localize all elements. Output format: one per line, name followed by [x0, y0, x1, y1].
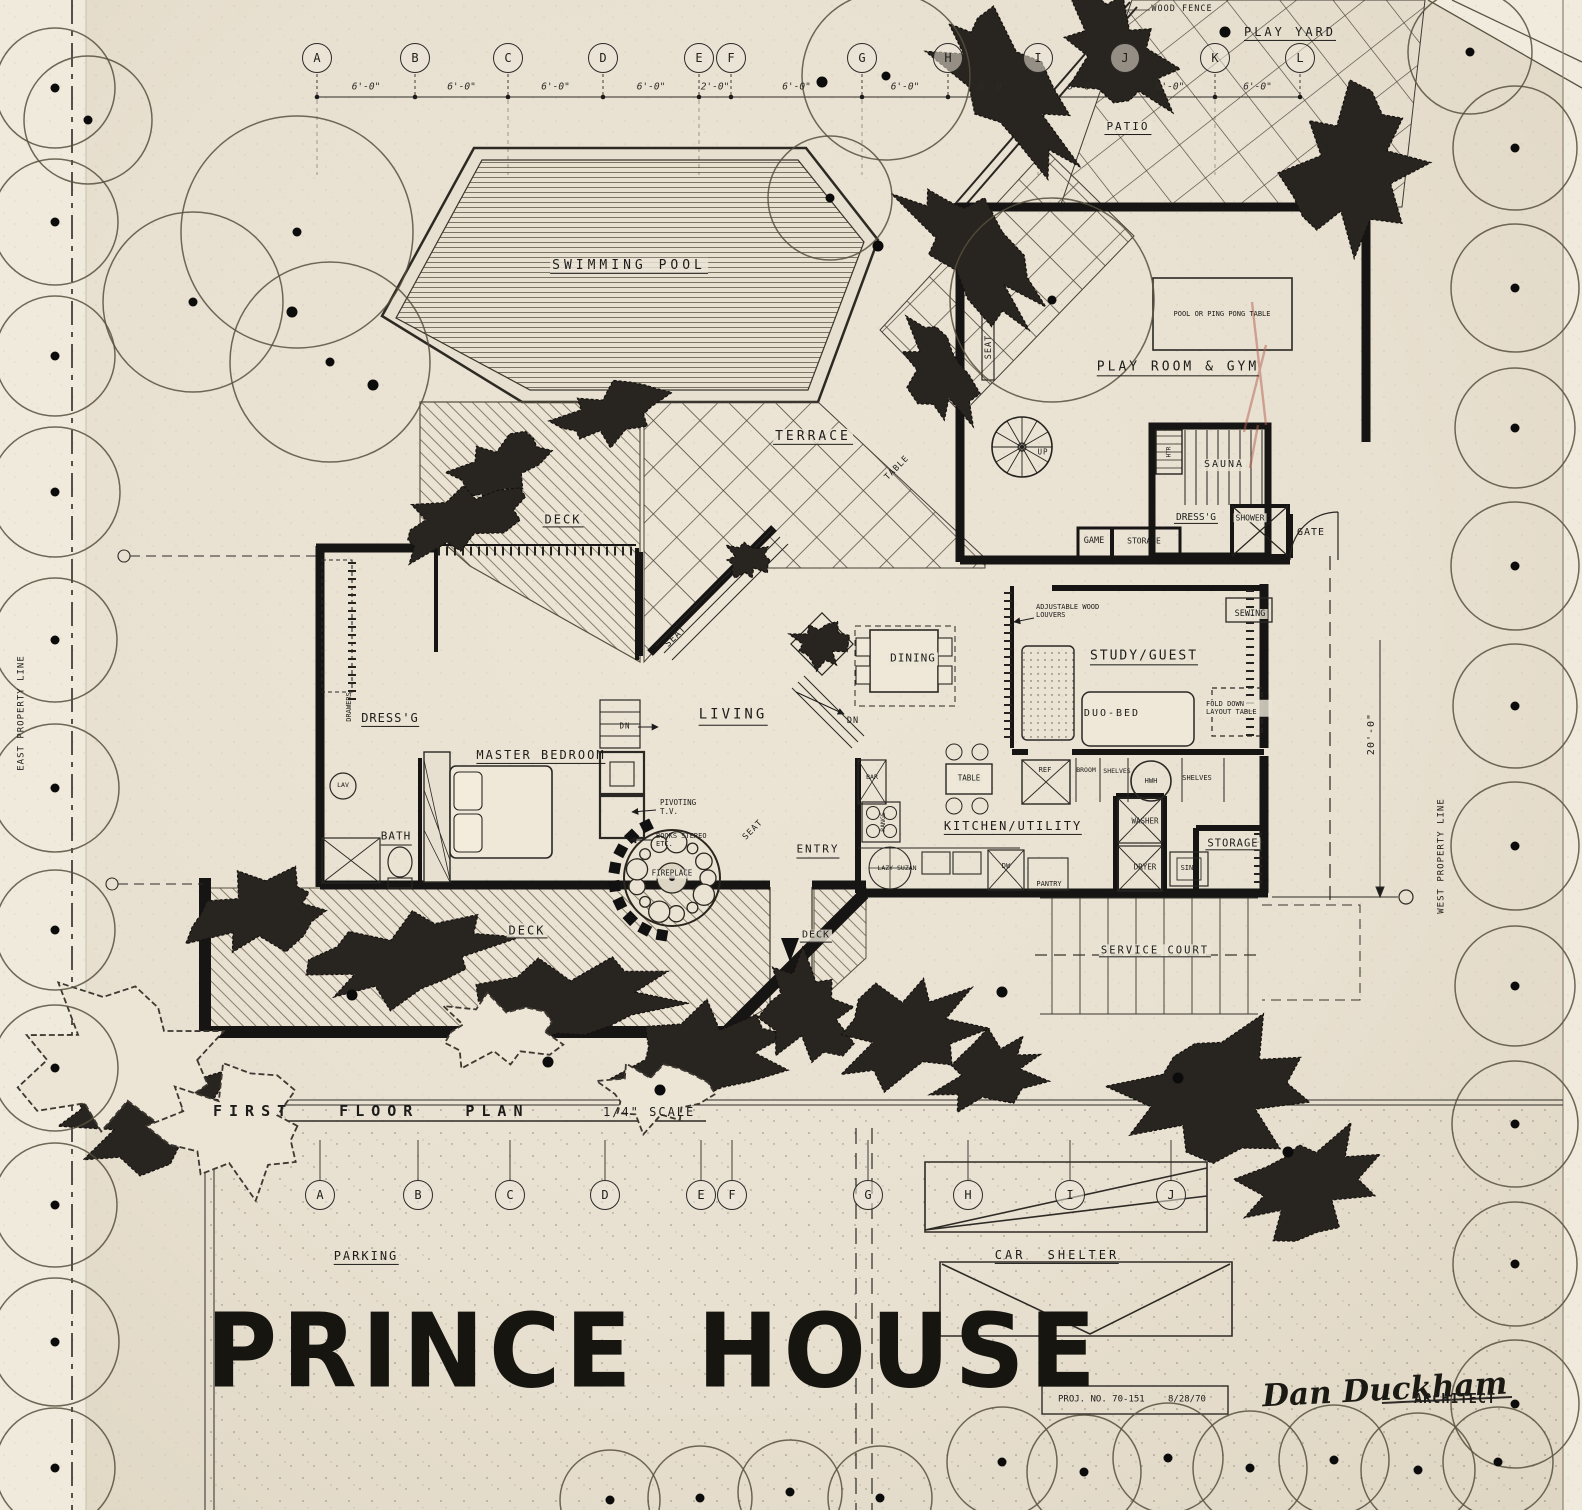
- range-label: RANGE: [880, 812, 888, 832]
- deck-upper-label: DECK: [543, 512, 584, 527]
- grid-dim-0: 6'-0": [352, 82, 381, 93]
- htr-label: HTR: [1165, 447, 1172, 458]
- seat-terrace-label: SEAT: [984, 335, 994, 359]
- service-court-label: SERVICE COURT: [1099, 944, 1211, 957]
- sheet-title: PRINCE HOUSE: [206, 1291, 1101, 1411]
- grid-dim-5: 6'-0": [782, 82, 811, 93]
- lazy-suzan-label: LAZY SUZAN: [877, 865, 917, 873]
- grid-bubble-top-I: I: [1023, 43, 1053, 73]
- books-stereo-label: BOOKS STEREO ETC.: [656, 832, 710, 849]
- hwh-label: HWH: [1145, 777, 1158, 785]
- grid-bubble-bottom-C: C: [495, 1180, 525, 1210]
- grid-bubble-top-C: C: [493, 43, 523, 73]
- sauna-label: SAUNA: [1202, 459, 1246, 471]
- grid-dim-10: 6'-0": [1243, 82, 1272, 93]
- storage-room-label: STORAGE: [1205, 837, 1260, 850]
- bath-label: BATH: [381, 831, 412, 846]
- grid-bubble-top-K: K: [1200, 43, 1230, 73]
- dn-living-label: DN: [847, 716, 859, 726]
- shelves-right-label: SHELVES: [1182, 774, 1212, 782]
- parking-label: PARKING: [334, 1249, 399, 1265]
- duo-bed-label: DUO-BED: [1084, 708, 1140, 720]
- plan-linework: [0, 0, 1582, 1510]
- shower-label: SHOWER: [1234, 513, 1267, 522]
- pool-table-label: POOL OR PING PONG TABLE: [1174, 310, 1271, 318]
- grid-bubble-top-G: G: [847, 43, 877, 73]
- study-guest-label: STUDY/GUEST: [1090, 648, 1198, 665]
- grid-bubble-top-F: F: [716, 43, 746, 73]
- sink-label: SINK: [1181, 864, 1198, 872]
- living-label: LIVING: [699, 707, 768, 726]
- grid-dim-9: 6'-0": [1156, 82, 1185, 93]
- deck-lower-right-label: DECK: [800, 930, 832, 943]
- grid-dim-3: 6'-0": [637, 82, 666, 93]
- fold-down-label: FOLD DOWN LAYOUT TABLE: [1204, 700, 1272, 717]
- deck-lower-left-label: DECK: [507, 923, 548, 938]
- terrace-label: TERRACE: [773, 429, 853, 445]
- grid-bubble-top-A: A: [302, 43, 332, 73]
- drawers-label: DRAWERS: [345, 692, 353, 722]
- gate-label: GATE: [1297, 527, 1325, 539]
- east-property-line-label: EAST PROPERTY LINE: [17, 655, 28, 771]
- architect-label: ARCHITECT: [1414, 1392, 1496, 1408]
- play-yard-label: PLAY YARD: [1244, 25, 1336, 41]
- grid-bubble-top-E: E: [684, 43, 714, 73]
- grid-dim-4: 2'-0": [701, 82, 730, 93]
- adjustable-louvers-label: ADJUSTABLE WOOD LOUVERS: [1036, 603, 1102, 620]
- grid-bubble-bottom-G: G: [853, 1180, 883, 1210]
- grid-dim-7: 6'-0": [979, 82, 1008, 93]
- grid-bubble-bottom-E: E: [686, 1180, 716, 1210]
- shelves-left-label: SHELVES: [1103, 768, 1130, 776]
- dn-master-label: DN: [619, 723, 630, 732]
- grid-dim-6: 6'-0": [891, 82, 920, 93]
- up-label: UP: [1037, 449, 1048, 458]
- patio-label: PATIO: [1104, 121, 1151, 135]
- ref-label: REF: [1039, 766, 1052, 774]
- grid-bubble-bottom-I: I: [1055, 1180, 1085, 1210]
- grid-bubble-top-B: B: [400, 43, 430, 73]
- plan-scale: 1/4" SCALE: [603, 1105, 695, 1119]
- grid-bubble-top-H: H: [933, 43, 963, 73]
- grid-bubble-bottom-A: A: [305, 1180, 335, 1210]
- grid-dim-1: 6'-0": [447, 82, 476, 93]
- project-number: PROJ. NO. 70-151: [1058, 1395, 1145, 1406]
- pivoting-tv-label: PIVOTING T.V.: [660, 799, 718, 817]
- car-shelter-label: CAR SHELTER: [995, 1248, 1119, 1264]
- pool-water: [396, 160, 864, 390]
- storage-outdoor-label: STORAGE: [1127, 536, 1161, 545]
- grid-bubble-bottom-B: B: [403, 1180, 433, 1210]
- plan-title: FIRST FLOOR PLAN: [213, 1103, 530, 1121]
- washer-label: WASHER: [1131, 818, 1158, 827]
- dressing-label: DRESS'G: [361, 711, 419, 727]
- west-property-line-label: WEST PROPERTY LINE: [1437, 798, 1448, 914]
- pantry-label: PANTRY: [1036, 880, 1061, 888]
- grid-bubble-bottom-F: F: [717, 1180, 747, 1210]
- lav-label: LAV: [337, 782, 349, 790]
- grid-bubble-top-L: L: [1285, 43, 1315, 73]
- floor-plan-sheet: WOOD FENCE PLAY YARD PATIO EAST PROPERTY…: [0, 0, 1582, 1510]
- dim-20ft-label: 20'-0": [1366, 713, 1378, 755]
- fireplace-label: FIREPLACE: [650, 870, 695, 879]
- grid-bubble-bottom-H: H: [953, 1180, 983, 1210]
- sewing-label: SEWING: [1233, 609, 1268, 619]
- entry-label: ENTRY: [796, 844, 839, 859]
- kitchen-utility-label: KITCHEN/UTILITY: [944, 819, 1082, 835]
- project-date: 8/28/70: [1168, 1395, 1206, 1406]
- dryer-label: DRYER: [1134, 864, 1157, 873]
- grid-bubble-top-D: D: [588, 43, 618, 73]
- dw-label: DW: [1002, 862, 1010, 870]
- game-label: GAME: [1084, 536, 1104, 546]
- dining-label: DINING: [888, 653, 938, 666]
- kitchen-table-label: TABLE: [956, 775, 983, 784]
- wood-fence-label: WOOD FENCE: [1151, 4, 1212, 14]
- master-bedroom-label: MASTER BEDROOM: [476, 748, 605, 764]
- grid-bubble-bottom-J: J: [1156, 1180, 1186, 1210]
- play-room-label: PLAY ROOM & GYM: [1097, 359, 1259, 376]
- dress-outdoor-label: DRESS'G: [1174, 512, 1218, 524]
- grid-bubble-top-J: J: [1110, 43, 1140, 73]
- grid-dim-8: 6'-0": [1067, 82, 1096, 93]
- grid-dim-2: 6'-0": [541, 82, 570, 93]
- bar-label: BAR: [866, 774, 878, 782]
- swimming-pool-label: SWIMMING POOL: [550, 258, 708, 274]
- broom-label: BROOM: [1076, 767, 1096, 775]
- grid-bubble-bottom-D: D: [590, 1180, 620, 1210]
